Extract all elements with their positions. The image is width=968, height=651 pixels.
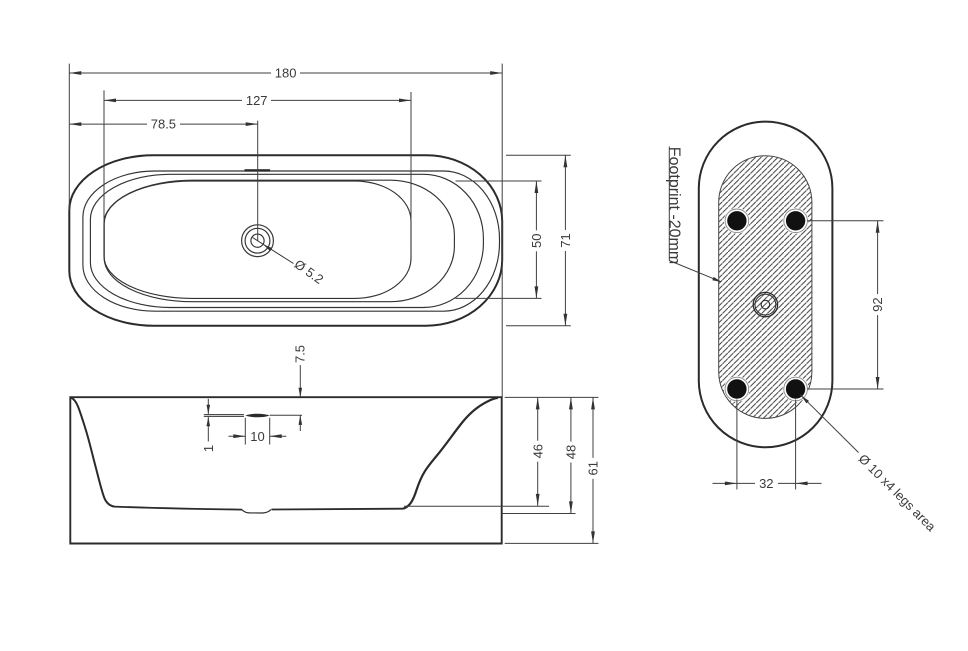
svg-text:61: 61	[586, 461, 601, 475]
svg-text:Footprint -20mm: Footprint -20mm	[666, 147, 683, 264]
svg-text:10: 10	[250, 429, 264, 444]
svg-text:71: 71	[558, 233, 573, 247]
svg-text:1: 1	[201, 445, 216, 452]
svg-text:50: 50	[529, 234, 544, 248]
svg-text:127: 127	[246, 93, 268, 108]
svg-text:7.5: 7.5	[292, 345, 307, 363]
svg-text:180: 180	[275, 66, 297, 81]
svg-text:32: 32	[759, 476, 773, 491]
svg-text:78.5: 78.5	[151, 117, 176, 132]
svg-text:46: 46	[530, 444, 545, 458]
svg-text:92: 92	[870, 297, 885, 311]
svg-text:48: 48	[564, 445, 579, 459]
